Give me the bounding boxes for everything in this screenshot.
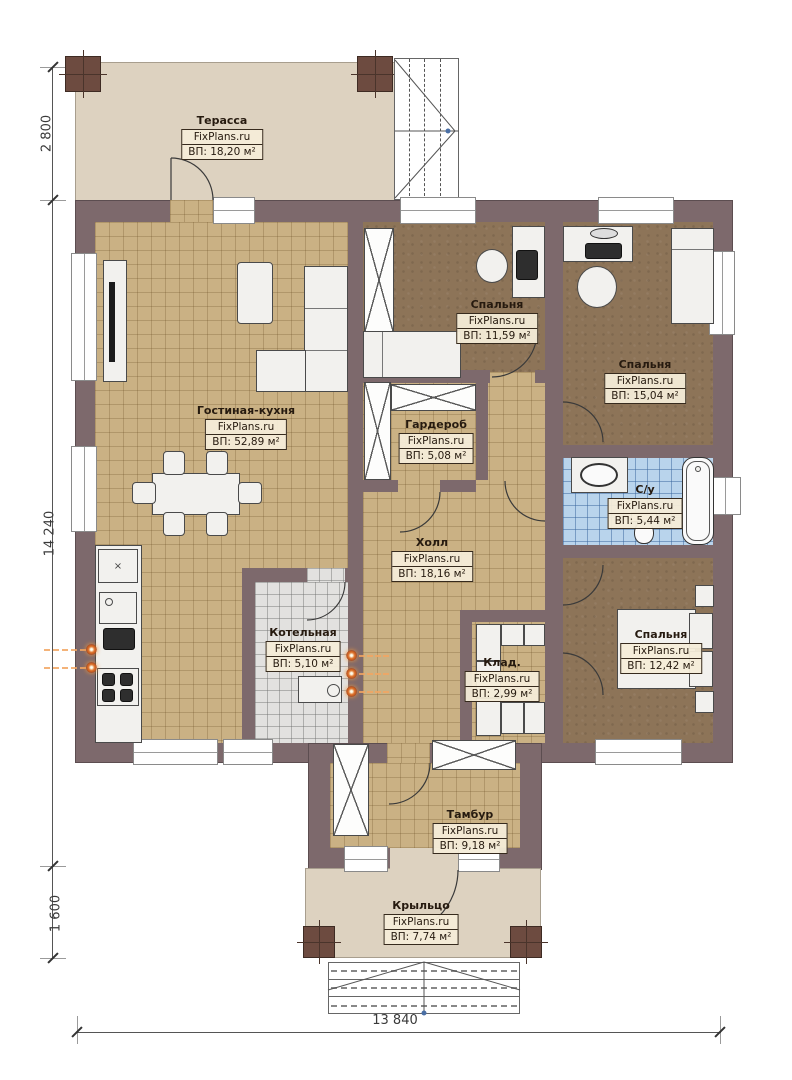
watermark-text: FixPlans.ru — [392, 552, 472, 567]
label-box: FixPlans.ru ВП: 5,08 м² — [399, 433, 474, 464]
watermark-text: FixPlans.ru — [621, 644, 701, 659]
room-name: Спальня — [604, 358, 686, 371]
room-name: Клад. — [465, 656, 540, 669]
pipe-dash — [359, 655, 389, 657]
room-area: ВП: 11,59 м² — [457, 329, 537, 343]
step-dash — [331, 970, 517, 972]
window — [344, 846, 388, 872]
partition — [440, 480, 476, 492]
tv — [109, 282, 115, 362]
room-area: ВП: 52,89 м² — [206, 435, 286, 449]
tv-stand — [103, 260, 127, 382]
room-name: С/у — [608, 483, 683, 496]
room-name: Спальня — [456, 298, 538, 311]
room-label-bedroom2: Спальня FixPlans.ru ВП: 15,04 м² — [604, 358, 686, 404]
desk-lamp — [590, 228, 618, 239]
step-dash — [331, 1005, 517, 1007]
label-box: FixPlans.ru ВП: 18,16 м² — [391, 551, 473, 582]
pillow-line — [672, 249, 713, 250]
room-label-storage: Клад. FixPlans.ru ВП: 2,99 м² — [465, 656, 540, 702]
desk-chair — [476, 249, 508, 283]
dining-chair — [132, 482, 156, 504]
dim-terrace-depth: 2 800 — [40, 104, 55, 164]
window — [598, 197, 674, 224]
shelf — [524, 702, 545, 734]
pillow-line — [382, 332, 383, 377]
watermark-text: FixPlans.ru — [267, 642, 340, 657]
radiator-dot — [86, 644, 97, 655]
label-box: FixPlans.ru ВП: 7,74 м² — [384, 914, 459, 945]
step-line — [424, 59, 425, 201]
dining-chair — [163, 512, 185, 536]
dim-total-width: 13 840 — [345, 1013, 445, 1028]
watermark-text: FixPlans.ru — [466, 672, 539, 687]
label-box: FixPlans.ru ВП: 5,10 м² — [266, 641, 341, 672]
burner — [102, 689, 115, 702]
room-area: ВП: 18,20 м² — [182, 145, 262, 159]
room-label-terrace: Терасса FixPlans.ru ВП: 18,20 м² — [181, 114, 263, 160]
burner — [120, 673, 133, 686]
stove — [97, 668, 139, 706]
room-name: Холл — [391, 536, 473, 549]
wardrobe-cabinet — [364, 228, 394, 332]
laptop — [585, 243, 622, 259]
bed-single — [363, 331, 461, 378]
dim-house-depth: 14 240 — [43, 504, 58, 564]
dining-chair — [238, 482, 262, 504]
partition — [545, 442, 563, 481]
bed-single — [671, 228, 714, 324]
window — [400, 197, 476, 224]
terrace-door-opening — [170, 200, 213, 222]
partition — [545, 222, 563, 400]
room-name: Гардероб — [399, 418, 474, 431]
label-box: FixPlans.ru ВП: 18,20 м² — [181, 129, 263, 160]
room-label-vestibule: Тамбур FixPlans.ru ВП: 9,18 м² — [433, 808, 508, 854]
watermark-text: FixPlans.ru — [605, 374, 685, 389]
window — [71, 446, 97, 532]
room-name: Котельная — [266, 626, 341, 639]
dining-chair — [206, 451, 228, 475]
watermark-text: FixPlans.ru — [434, 824, 507, 839]
sofa-chaise — [256, 350, 306, 392]
hall-vestibule-opening — [387, 743, 430, 763]
label-box: FixPlans.ru ВП: 52,89 м² — [205, 419, 287, 450]
pipe-dash — [359, 691, 389, 693]
partition — [545, 521, 563, 565]
label-box: FixPlans.ru ВП: 15,04 м² — [604, 373, 686, 404]
bathtub-inner — [686, 461, 710, 541]
oven — [103, 628, 135, 650]
fridge: × — [98, 549, 138, 583]
window — [133, 739, 218, 765]
window — [71, 253, 97, 381]
partition — [563, 545, 713, 558]
room-name: Тамбур — [433, 808, 508, 821]
faucet — [105, 598, 113, 606]
step-line — [409, 59, 410, 201]
pipe-dash — [44, 667, 86, 669]
dining-chair — [206, 512, 228, 536]
partition — [460, 610, 548, 622]
terrace-post — [357, 56, 393, 92]
room-label-boiler: Котельная FixPlans.ru ВП: 5,10 м² — [266, 626, 341, 672]
wardrobe-cabinet — [432, 740, 516, 770]
partition — [348, 540, 363, 743]
label-box: FixPlans.ru ВП: 12,42 м² — [620, 643, 702, 674]
boiler-unit — [298, 676, 342, 703]
step-line — [329, 979, 519, 980]
room-area: ВП: 5,44 м² — [609, 514, 682, 528]
boiler-door-opening — [307, 568, 345, 582]
room-area: ВП: 5,10 м² — [267, 657, 340, 671]
terrace-steps — [394, 58, 459, 200]
boiler-dial — [327, 684, 340, 697]
wardrobe-cabinet — [391, 384, 476, 411]
partition — [363, 480, 398, 492]
radiator-dot — [346, 668, 357, 679]
label-box: FixPlans.ru ВП: 9,18 м² — [433, 823, 508, 854]
nightstand — [695, 691, 714, 713]
label-box: FixPlans.ru ВП: 11,59 м² — [456, 313, 538, 344]
radiator-dot — [346, 650, 357, 661]
room-area: ВП: 7,74 м² — [385, 930, 458, 944]
watermark-text: FixPlans.ru — [206, 420, 286, 435]
room-label-living-kitchen: Гостиная-кухня FixPlans.ru ВП: 52,89 м² — [197, 404, 295, 450]
shelf — [501, 624, 524, 646]
partition — [345, 568, 348, 582]
partition — [545, 695, 563, 743]
room-label-hall: Холл FixPlans.ru ВП: 18,16 м² — [391, 536, 473, 582]
burner — [120, 689, 133, 702]
shelf — [501, 702, 524, 734]
sofa — [304, 266, 348, 392]
step-dash — [331, 987, 517, 989]
room-name: Терасса — [181, 114, 263, 127]
wardrobe-cabinet — [333, 744, 369, 836]
room-area: ВП: 18,16 м² — [392, 567, 472, 581]
kitchen-sink — [99, 592, 137, 624]
room-label-bedroom1: Спальня FixPlans.ru ВП: 11,59 м² — [456, 298, 538, 344]
radiator-dot — [86, 662, 97, 673]
burner — [102, 673, 115, 686]
pipe-dash — [359, 673, 389, 675]
dining-table — [152, 473, 240, 515]
room-label-porch: Крыльцо FixPlans.ru ВП: 7,74 м² — [384, 899, 459, 945]
dining-chair — [163, 451, 185, 475]
coffee-table — [237, 262, 273, 324]
room-name: Спальня — [620, 628, 702, 641]
drain — [695, 466, 701, 472]
room-area: ВП: 5,08 м² — [400, 449, 473, 463]
terrace-post — [65, 56, 101, 92]
porch-post — [510, 926, 542, 958]
wardrobe-cabinet — [364, 382, 391, 480]
pipe-dash — [44, 649, 86, 651]
room-area: ВП: 12,42 м² — [621, 659, 701, 673]
laptop — [516, 250, 538, 280]
porch-post — [303, 926, 335, 958]
dim-porch-depth: 1 600 — [49, 884, 64, 944]
room-label-bathroom: С/у FixPlans.ru ВП: 5,44 м² — [608, 483, 683, 529]
room-area: ВП: 9,18 м² — [434, 839, 507, 853]
step-line — [440, 59, 441, 201]
room-label-wardrobe: Гардероб FixPlans.ru ВП: 5,08 м² — [399, 418, 474, 464]
room-name: Крыльцо — [384, 899, 459, 912]
desk-chair — [577, 266, 617, 308]
watermark-text: FixPlans.ru — [400, 434, 473, 449]
label-box: FixPlans.ru ВП: 2,99 м² — [465, 671, 540, 702]
room-name: Гостиная-кухня — [197, 404, 295, 417]
porch-steps — [328, 962, 520, 1014]
watermark-text: FixPlans.ru — [182, 130, 262, 145]
step-line — [329, 996, 519, 997]
shelf — [476, 698, 501, 736]
sofa-cushion-line — [305, 308, 347, 309]
room-area: ВП: 2,99 м² — [466, 687, 539, 701]
radiator-dot — [346, 686, 357, 697]
partition — [348, 222, 363, 480]
label-box: FixPlans.ru ВП: 5,44 м² — [608, 498, 683, 529]
partition — [242, 568, 255, 743]
room-label-bedroom3: Спальня FixPlans.ru ВП: 12,42 м² — [620, 628, 702, 674]
shelf — [524, 624, 545, 646]
room-area: ВП: 15,04 м² — [605, 389, 685, 403]
bathtub — [682, 457, 714, 545]
watermark-text: FixPlans.ru — [609, 499, 682, 514]
window — [213, 197, 255, 224]
floor-plan: 2 800 14 240 1 600 13 840 — [0, 0, 792, 1080]
partition — [476, 383, 488, 480]
window — [223, 739, 273, 765]
window — [595, 739, 682, 765]
watermark-text: FixPlans.ru — [385, 915, 458, 930]
partition — [535, 370, 545, 383]
watermark-text: FixPlans.ru — [457, 314, 537, 329]
nightstand — [695, 585, 714, 607]
dimension-line-horizontal — [77, 1032, 721, 1033]
sofa-cushion-line — [305, 350, 347, 351]
